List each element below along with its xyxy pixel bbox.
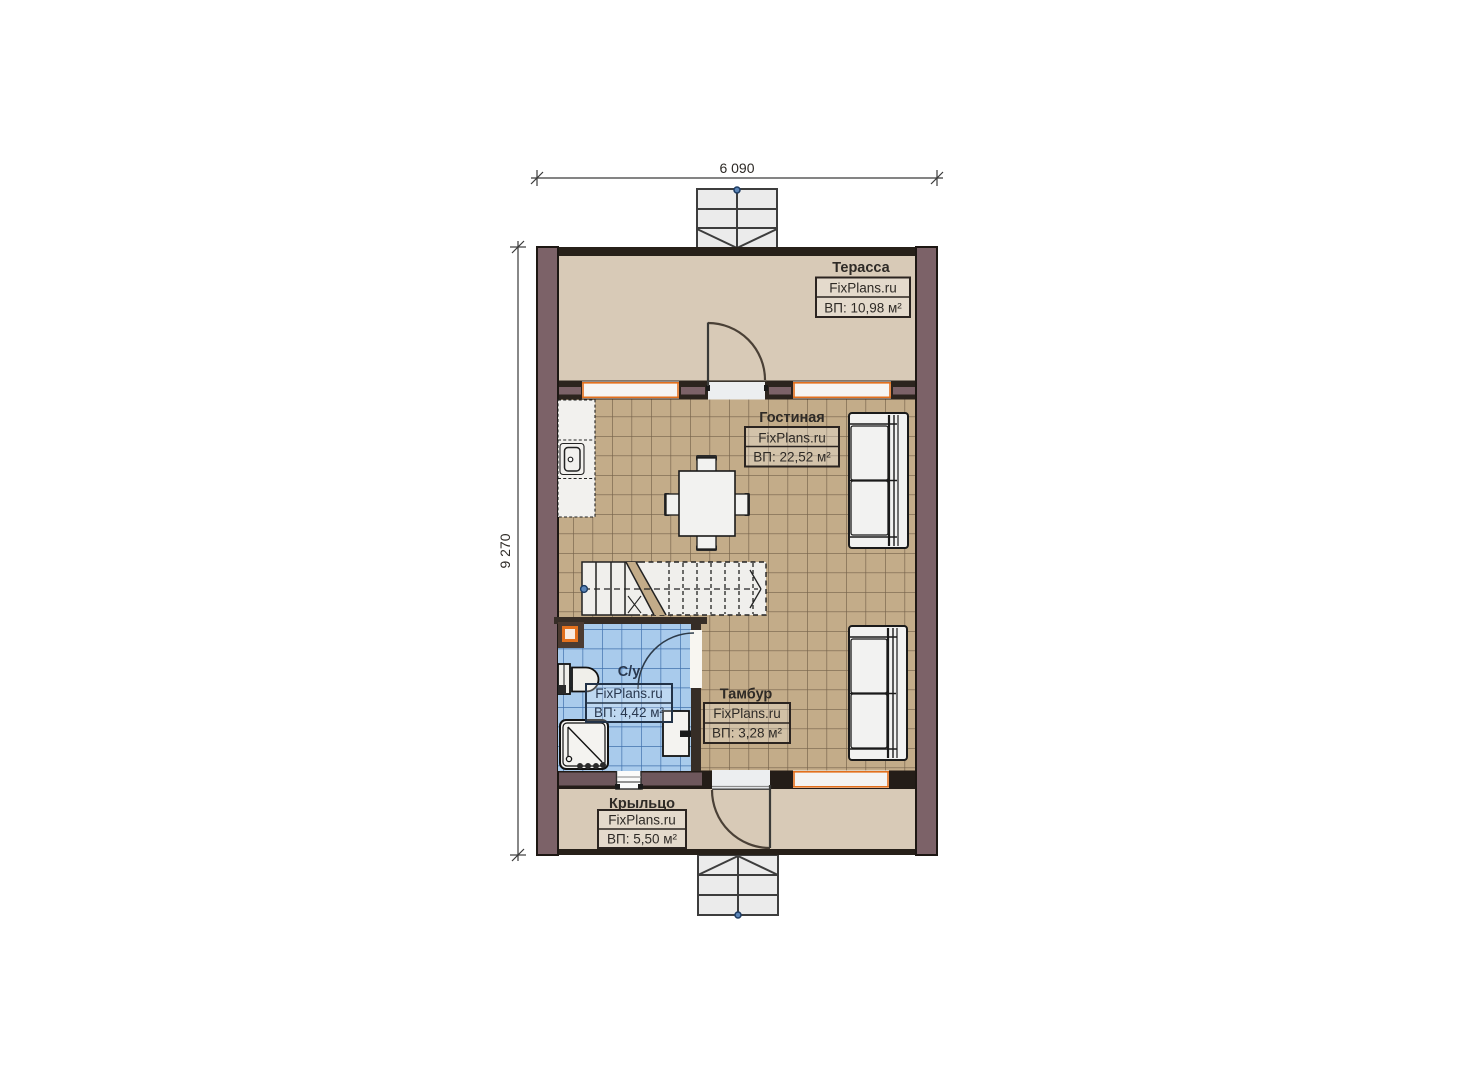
svg-text:Гостиная: Гостиная xyxy=(759,410,825,426)
svg-text:ВП: 10,98 м²: ВП: 10,98 м² xyxy=(824,301,902,316)
svg-text:ВП: 4,42 м²: ВП: 4,42 м² xyxy=(594,705,665,720)
svg-text:6 090: 6 090 xyxy=(719,160,754,176)
svg-text:С/у: С/у xyxy=(618,664,641,680)
svg-text:FixPlans.ru: FixPlans.ru xyxy=(595,686,663,701)
svg-text:FixPlans.ru: FixPlans.ru xyxy=(713,706,781,721)
svg-text:ВП: 22,52 м²: ВП: 22,52 м² xyxy=(753,450,831,465)
svg-text:FixPlans.ru: FixPlans.ru xyxy=(608,813,676,828)
svg-text:ВП: 3,28 м²: ВП: 3,28 м² xyxy=(712,726,783,741)
svg-text:FixPlans.ru: FixPlans.ru xyxy=(758,431,826,446)
svg-text:ВП: 5,50 м²: ВП: 5,50 м² xyxy=(607,832,678,847)
svg-text:Терасса: Терасса xyxy=(832,260,890,276)
svg-text:Тамбур: Тамбур xyxy=(720,687,773,703)
svg-text:9 270: 9 270 xyxy=(497,533,513,568)
svg-text:FixPlans.ru: FixPlans.ru xyxy=(829,281,897,296)
